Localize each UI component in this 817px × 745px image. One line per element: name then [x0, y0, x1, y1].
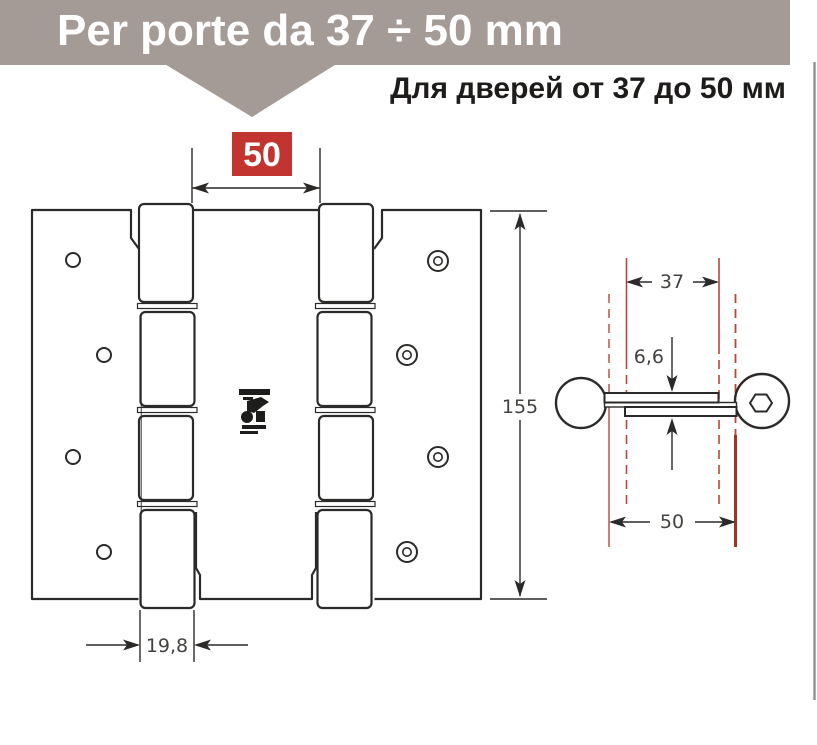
min-door-dim-label: 37 — [660, 271, 684, 293]
countersunk-hole — [397, 345, 417, 365]
subtitle-text: Для дверей от 37 до 50 мм — [390, 72, 786, 106]
plain-hole — [66, 450, 80, 464]
front-view: 50 155 — [32, 132, 547, 662]
banner-title-bar: Per porte da 37 ÷ 50 mm — [0, 0, 790, 65]
left-knob — [556, 378, 606, 428]
countersunk-hole — [397, 542, 417, 562]
side-view: 37 6,6 50 — [556, 258, 789, 547]
banner-pointer-icon — [163, 63, 338, 117]
manufacturer-stamp-icon — [239, 389, 270, 434]
knuckle-dim-label: 19,8 — [146, 635, 188, 657]
door-width-badge-label: 50 — [243, 136, 281, 174]
right-leaf-outline — [374, 210, 481, 599]
max-door-dim-label: 50 — [660, 511, 684, 533]
plate-dim-label: 6,6 — [634, 346, 664, 368]
top-width-dimension: 50 — [192, 132, 320, 203]
left-leaf-outline — [32, 210, 139, 599]
min-door-dimension: 37 — [626, 271, 719, 293]
right-knob — [735, 374, 789, 428]
plain-hole — [97, 348, 111, 362]
page-root: Per porte da 37 ÷ 50 mm Для дверей от 37… — [0, 0, 817, 745]
technical-drawing: 50 155 — [0, 0, 817, 745]
countersunk-hole — [428, 251, 448, 271]
hinge-plates-section — [605, 393, 737, 416]
max-door-dimension: 50 — [609, 511, 736, 533]
knuckle-dimension: 19,8 — [86, 610, 248, 662]
plain-hole — [97, 545, 111, 559]
countersunk-hole — [428, 447, 448, 467]
right-hinge-barrel — [316, 204, 376, 608]
center-leaf-bottom-edge — [196, 512, 316, 599]
plain-hole — [66, 253, 80, 267]
height-dimension: 155 — [490, 211, 547, 599]
height-dim-label: 155 — [502, 396, 538, 418]
banner-title: Per porte da 37 ÷ 50 mm — [57, 6, 563, 55]
left-hinge-barrel — [138, 204, 198, 608]
